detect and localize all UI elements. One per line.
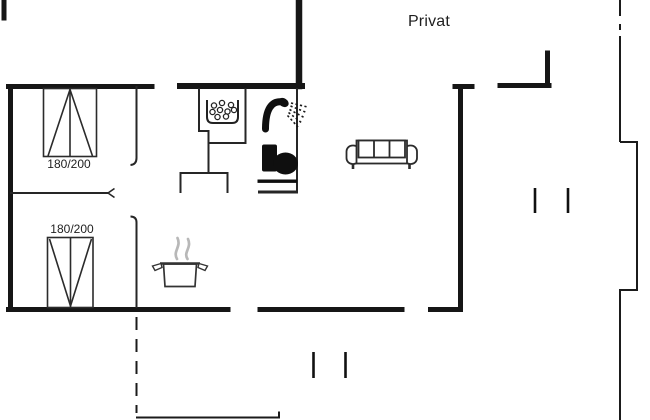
opening-ticks xyxy=(314,188,569,378)
double-bed-icon xyxy=(48,238,94,308)
floorplan-canvas: Privat 180/200 180/200 xyxy=(0,0,650,420)
wall-hall-lower xyxy=(131,217,137,309)
boundary-bottom-terrace xyxy=(136,412,279,418)
floorplan-drawing xyxy=(0,0,650,420)
privat-area-label: Privat xyxy=(403,14,455,30)
shower-icon xyxy=(266,96,308,129)
double-bed-icon xyxy=(44,89,97,157)
bed-size-label-top: 180/200 xyxy=(40,158,98,170)
boundary-lines xyxy=(136,0,637,420)
steam-left xyxy=(176,238,179,259)
steam-right xyxy=(186,239,189,259)
wall-hall-upper xyxy=(131,86,137,165)
wall-entry-u-shape xyxy=(181,173,228,193)
bed-size-label-bottom: 180/200 xyxy=(43,223,101,235)
washbasin-icon xyxy=(207,100,238,123)
sofa-icon xyxy=(347,141,418,170)
boundary-right-step xyxy=(620,142,637,420)
toilet-icon xyxy=(258,145,299,183)
cooking-pot-icon xyxy=(153,238,208,287)
door-hook-divider xyxy=(108,189,115,198)
